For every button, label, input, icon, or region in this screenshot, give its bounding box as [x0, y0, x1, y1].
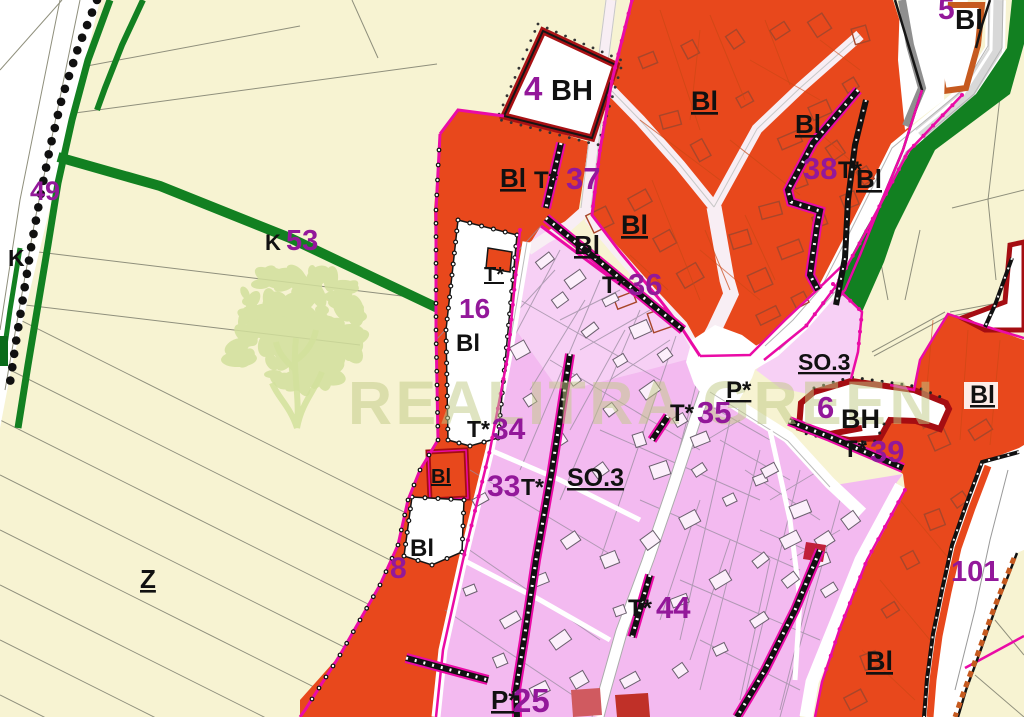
- svg-text:Bl: Bl: [410, 535, 434, 562]
- svg-text:T*: T*: [843, 436, 868, 463]
- svg-text:101: 101: [951, 556, 999, 588]
- svg-text:39: 39: [870, 434, 904, 469]
- svg-text:8: 8: [390, 552, 407, 585]
- svg-text:T*: T*: [602, 272, 627, 299]
- svg-text:6: 6: [817, 390, 834, 425]
- svg-text:37: 37: [566, 161, 600, 196]
- svg-text:Bl: Bl: [795, 109, 821, 139]
- svg-text:T*: T*: [628, 595, 653, 622]
- svg-text:38: 38: [803, 151, 837, 186]
- svg-text:Bl: Bl: [574, 230, 600, 260]
- svg-text:49: 49: [30, 176, 60, 206]
- svg-text:T*: T*: [467, 416, 490, 442]
- svg-text:Bl: Bl: [856, 164, 882, 194]
- svg-text:25: 25: [513, 682, 550, 717]
- svg-text:Bl: Bl: [691, 86, 718, 116]
- svg-text:Bl: Bl: [456, 330, 480, 357]
- svg-text:Bl: Bl: [500, 163, 526, 193]
- svg-text:SO.3: SO.3: [567, 464, 624, 492]
- svg-text:Bl: Bl: [866, 646, 893, 676]
- svg-text:5: 5: [938, 0, 955, 26]
- svg-text:Bl: Bl: [431, 466, 451, 488]
- svg-text:35: 35: [697, 395, 731, 430]
- svg-text:Z: Z: [140, 564, 156, 594]
- svg-text:34: 34: [492, 413, 526, 446]
- svg-text:Bl: Bl: [621, 210, 648, 240]
- svg-text:36: 36: [628, 267, 662, 302]
- svg-text:44: 44: [656, 590, 691, 625]
- svg-text:T*: T*: [521, 474, 544, 500]
- svg-text:33: 33: [487, 470, 520, 503]
- svg-text:T*: T*: [534, 167, 559, 194]
- svg-text:BH: BH: [841, 404, 880, 434]
- svg-text:K: K: [265, 230, 281, 255]
- svg-text:T*: T*: [670, 400, 695, 427]
- svg-text:16: 16: [459, 293, 490, 324]
- svg-text:4: 4: [524, 70, 543, 107]
- svg-text:T*: T*: [484, 264, 504, 286]
- svg-text:K: K: [8, 245, 25, 271]
- svg-text:BH: BH: [551, 75, 593, 107]
- svg-text:SO.3: SO.3: [798, 349, 850, 375]
- svg-text:Bl: Bl: [955, 4, 983, 35]
- svg-text:53: 53: [286, 225, 318, 257]
- svg-text:Bl: Bl: [970, 381, 995, 409]
